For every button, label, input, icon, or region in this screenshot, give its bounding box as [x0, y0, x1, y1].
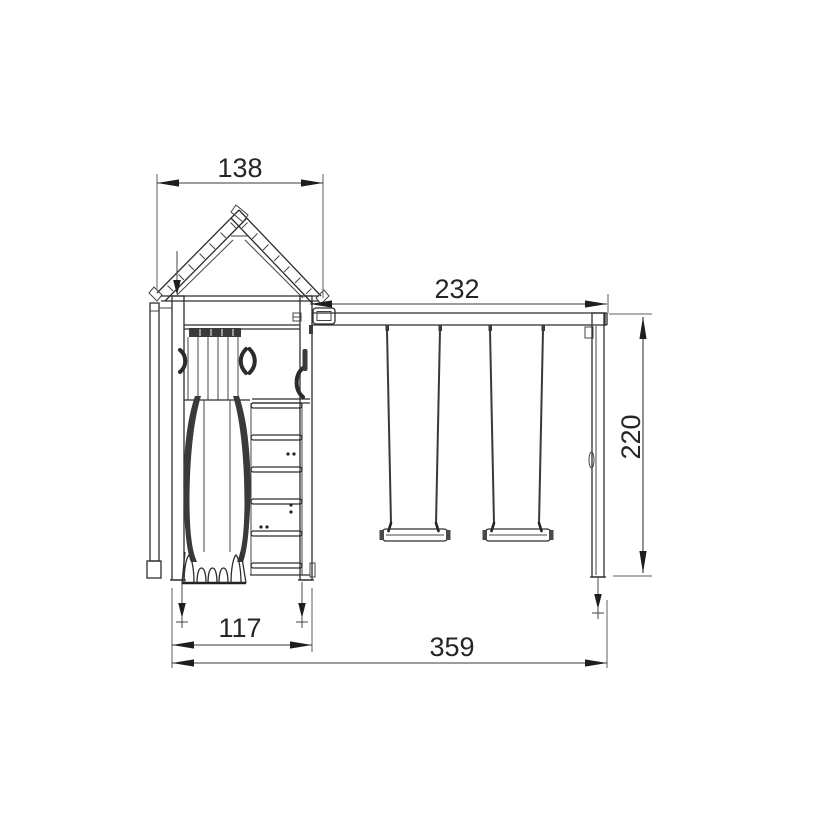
ladder-rung [251, 531, 302, 536]
slide-rail-left [183, 396, 201, 562]
ladder-rung [251, 403, 302, 408]
beam-bolt [309, 325, 313, 334]
grab-handle-pair-left [241, 349, 246, 373]
dim-label-total-length: 359 [429, 632, 474, 662]
playset-elevation-drawing: 138 232 220 117 359 [0, 0, 828, 828]
tower-frame [147, 296, 319, 580]
left-post-anchor [176, 582, 188, 628]
ladder-rung [251, 435, 302, 440]
dim-post-height: 220 [609, 314, 652, 576]
dim-label-beam-length: 232 [434, 274, 479, 304]
seat-cap [380, 530, 385, 540]
grab-handle-left [180, 350, 185, 372]
drawing-canvas: 138 232 220 117 359 [0, 0, 828, 828]
dim-label-post-height: 220 [616, 414, 646, 459]
right-post-anchor [296, 582, 308, 628]
swing-beam [293, 308, 607, 338]
seat-cap [446, 530, 451, 540]
rope-hook [436, 523, 439, 531]
tower-left-post [172, 296, 184, 580]
rope-hook [389, 523, 392, 531]
dim-label-tower-width: 138 [217, 153, 262, 183]
side-panel-foot [147, 561, 161, 578]
side-wall-panel [150, 303, 159, 561]
swing-hangers [386, 325, 546, 331]
swing-2 [483, 330, 554, 541]
screw-dots [259, 452, 295, 528]
support-post [589, 313, 606, 577]
beam-bracket [313, 308, 335, 324]
dim-beam-length: 232 [310, 274, 608, 313]
eave-anchor-arrow [173, 251, 181, 295]
slide-rail-right [233, 396, 251, 562]
back-wall-slats [188, 337, 238, 400]
ladder [250, 403, 315, 577]
seat-cap [483, 530, 488, 540]
gable-interior [177, 236, 303, 298]
support-post-anchor [592, 577, 604, 619]
ladder-rung [251, 499, 302, 504]
dim-label-tower-depth: 117 [218, 613, 261, 643]
rope-hook [492, 523, 495, 531]
rope-hook [539, 523, 542, 531]
seat-cap [549, 530, 554, 540]
grab-handle-pair-right [250, 349, 255, 373]
tube-slide [182, 396, 251, 583]
swing-1 [380, 330, 451, 541]
ladder-rung [251, 563, 302, 568]
grip-strip [303, 349, 308, 371]
dim-tower-depth: 117 [172, 588, 312, 668]
ladder-rung [251, 467, 302, 472]
